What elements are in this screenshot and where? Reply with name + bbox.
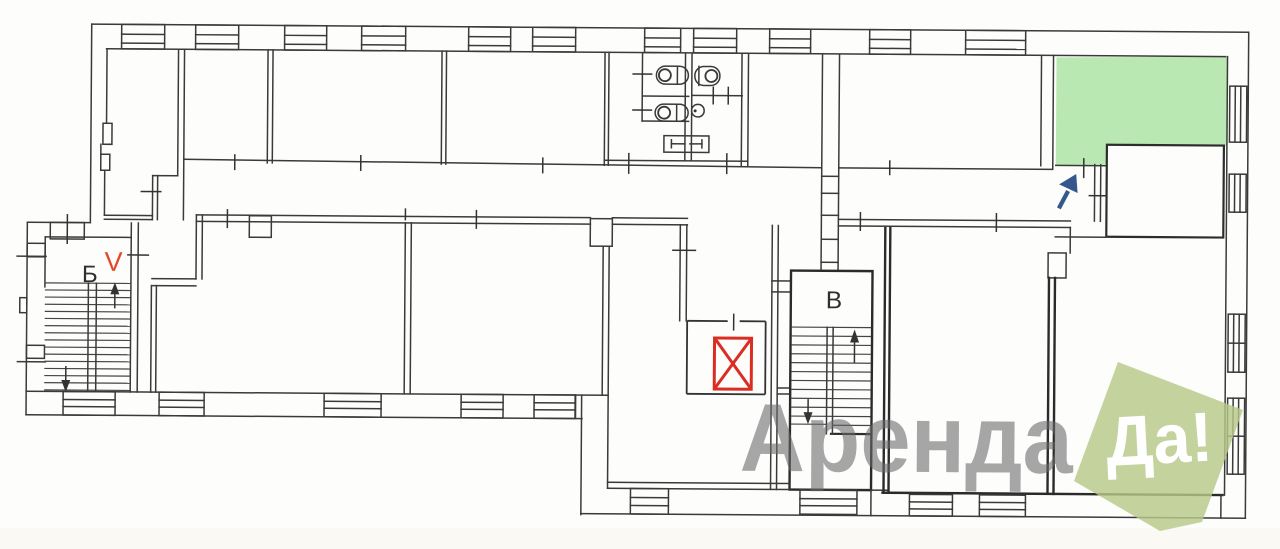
svg-text:Б: Б xyxy=(82,261,98,288)
svg-text:Да!: Да! xyxy=(1104,397,1215,480)
svg-text:В: В xyxy=(826,287,843,314)
svg-text:Аренда: Аренда xyxy=(739,385,1074,494)
svg-text:V: V xyxy=(104,247,122,277)
